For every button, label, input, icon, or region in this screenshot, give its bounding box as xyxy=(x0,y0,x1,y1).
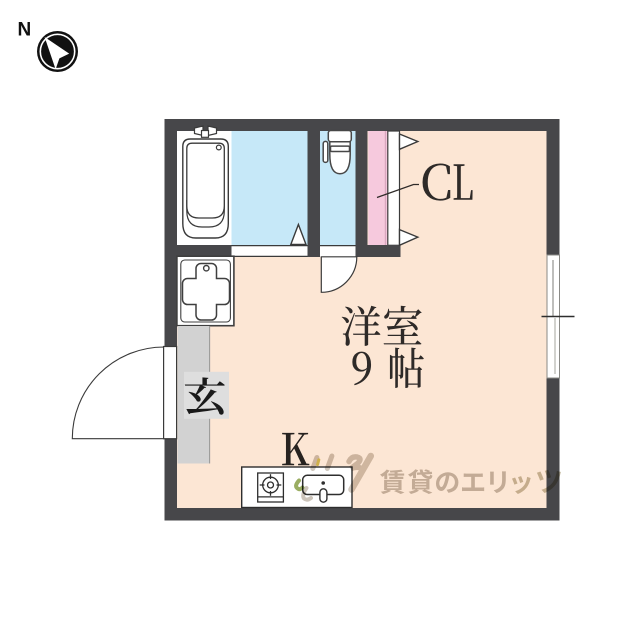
svg-text:N: N xyxy=(18,20,32,41)
